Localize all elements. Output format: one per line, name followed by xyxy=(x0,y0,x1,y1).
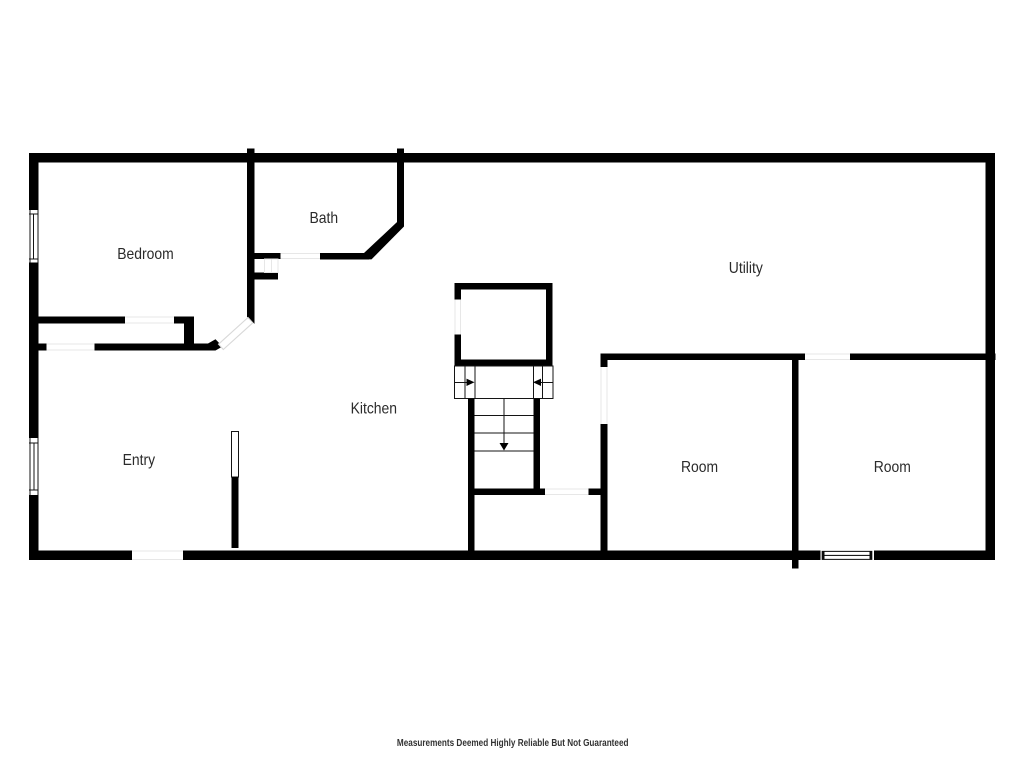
svg-text:Bath: Bath xyxy=(309,209,338,227)
svg-text:Measurements Deemed Highly Rel: Measurements Deemed Highly Reliable But … xyxy=(397,737,629,748)
svg-text:Room: Room xyxy=(681,458,718,476)
svg-text:Entry: Entry xyxy=(123,451,156,469)
svg-text:Utility: Utility xyxy=(729,259,763,277)
svg-text:Room: Room xyxy=(874,458,911,476)
svg-text:Bedroom: Bedroom xyxy=(117,245,173,263)
svg-text:Kitchen: Kitchen xyxy=(351,399,397,417)
